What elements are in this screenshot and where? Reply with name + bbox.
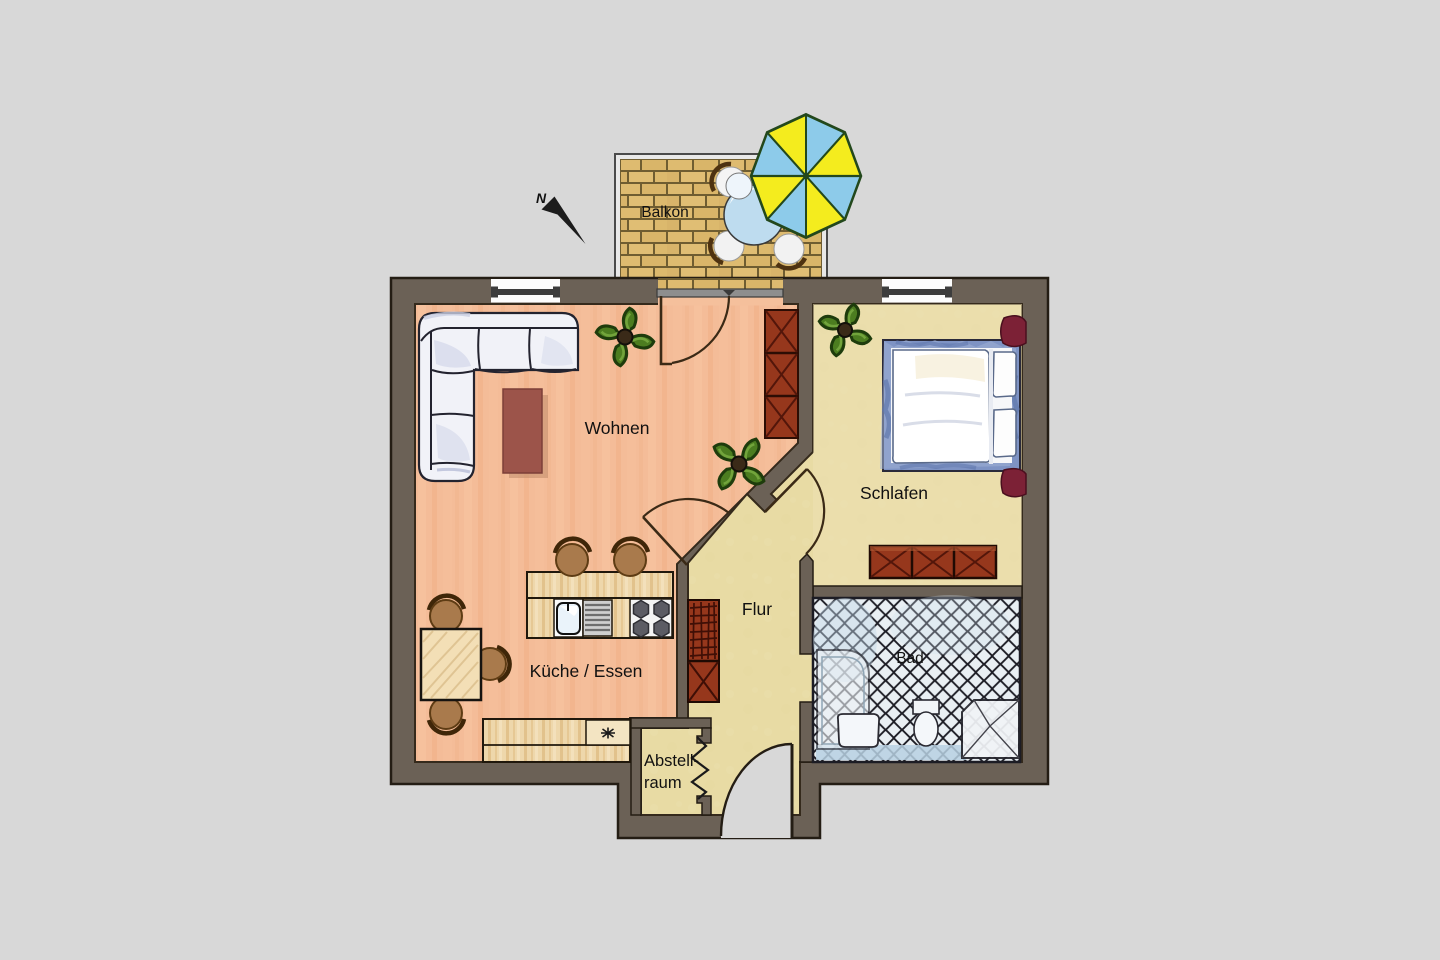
svg-text:Flur: Flur [742,599,772,619]
svg-text:Bad: Bad [896,650,924,667]
svg-text:Abstell-: Abstell- [644,752,699,770]
svg-text:Wohnen: Wohnen [585,418,650,438]
svg-text:raum: raum [644,774,682,792]
svg-text:N: N [536,190,547,206]
svg-text:Balkon: Balkon [641,204,688,221]
svg-text:Schlafen: Schlafen [860,483,928,503]
svg-text:Küche / Essen: Küche / Essen [530,661,643,681]
